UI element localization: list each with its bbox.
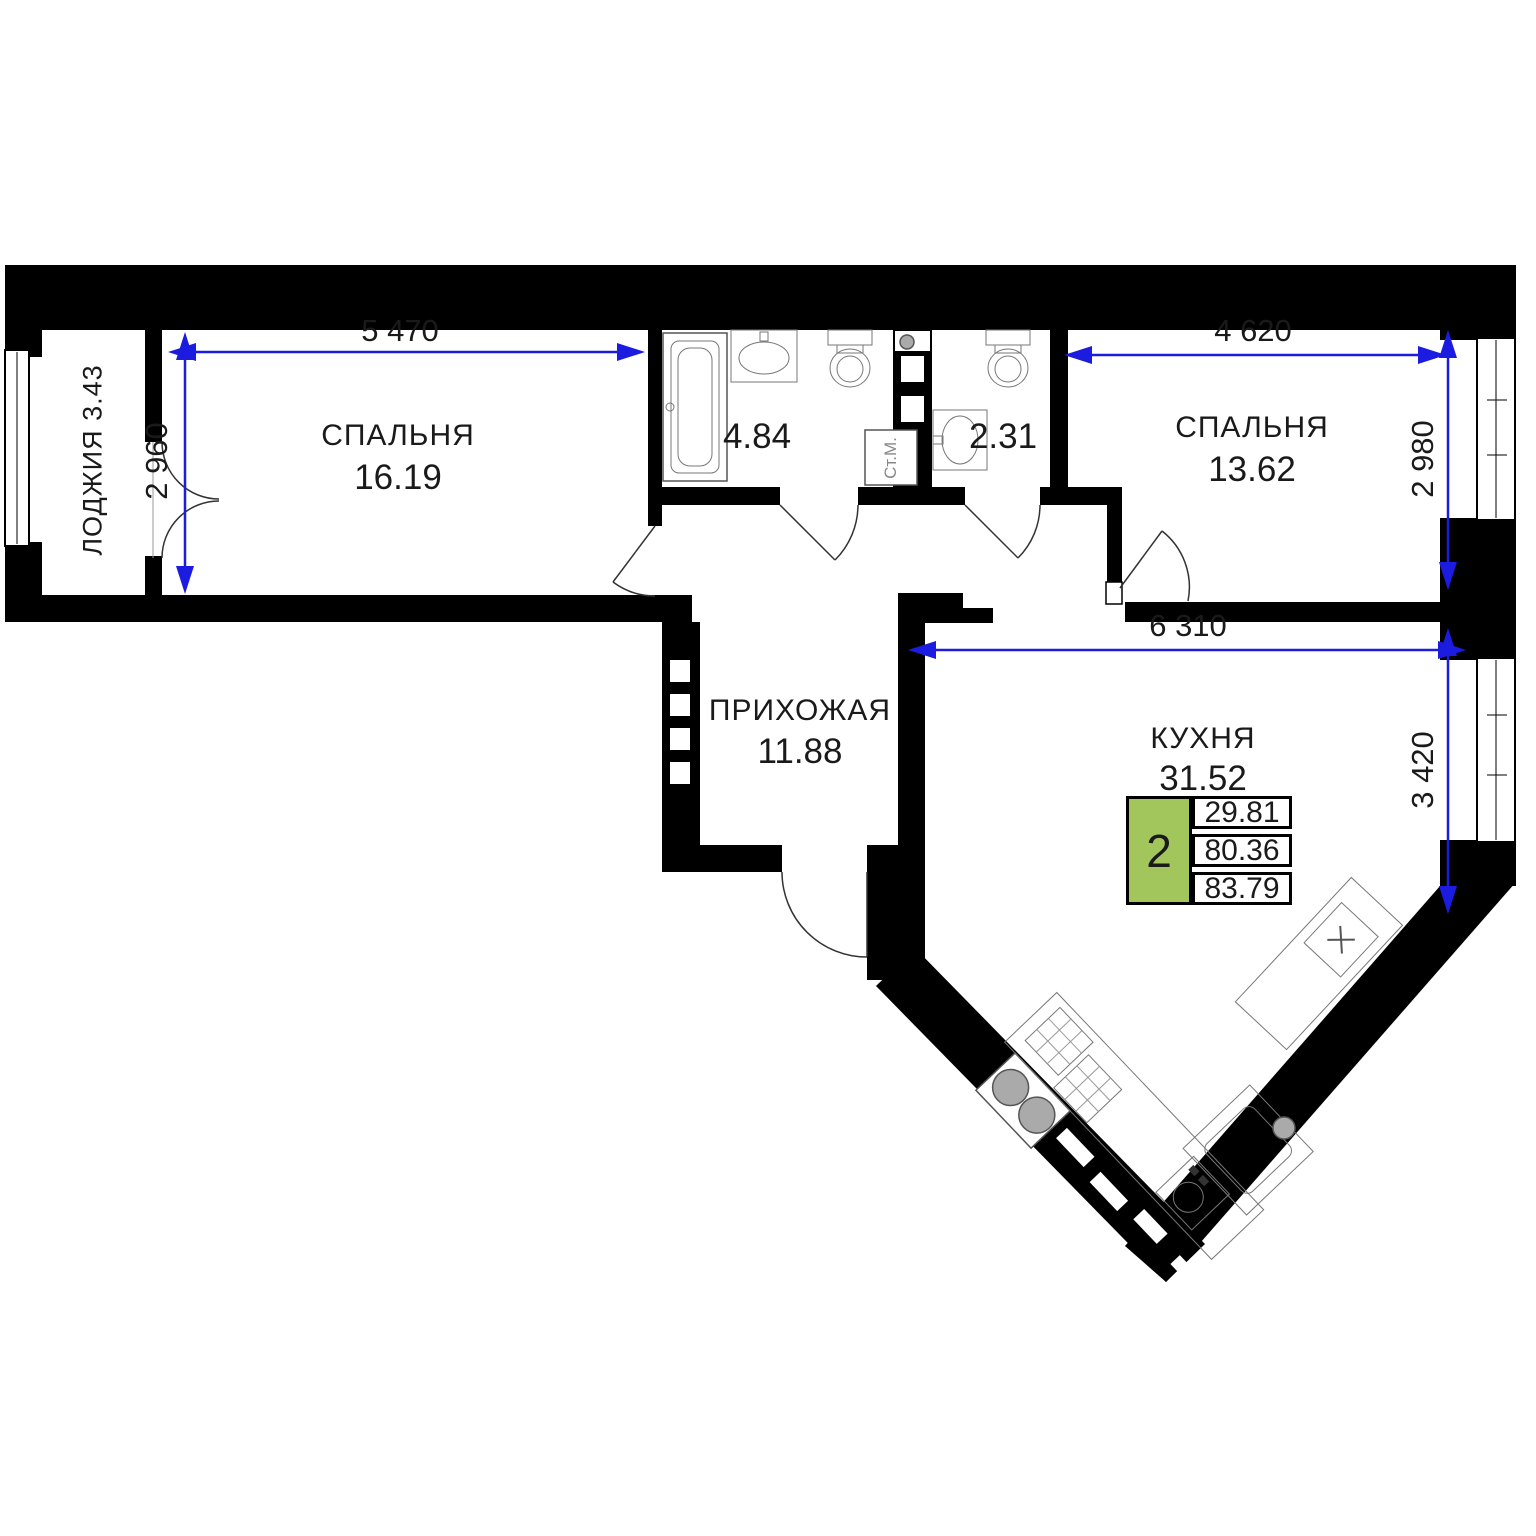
wall-hall-bottom <box>662 845 782 872</box>
hall-niche-3 <box>670 728 690 750</box>
wall-loggia-divider-bottom <box>145 556 162 597</box>
wc-door <box>965 505 1040 558</box>
wall-right-top-block <box>1440 265 1516 340</box>
apartment-info-box: 2 29.81 80.36 83.79 <box>1126 796 1292 905</box>
duct-cell-1 <box>901 356 924 382</box>
loggia-label: ЛОДЖИЯ 3.43 <box>78 364 109 555</box>
bedroom1-door <box>613 526 655 596</box>
area-values: 29.81 80.36 83.79 <box>1192 796 1292 905</box>
bath-sink-tap <box>760 332 768 341</box>
dim-kitchen-width: 6 310 <box>1149 608 1227 644</box>
kitchen-pipe-icon <box>1273 1117 1295 1139</box>
entrance-door <box>782 872 867 957</box>
wall-kitchen-top-b <box>963 608 993 623</box>
wall-kitchen-diagonal-right <box>1125 846 1516 1282</box>
hall-niche-1 <box>670 660 690 682</box>
rooms-count-badge: 2 <box>1126 796 1192 905</box>
hallway-area: 11.88 <box>758 732 843 772</box>
duct-cell-2 <box>901 396 924 422</box>
bath-toilet-tank <box>828 330 872 345</box>
wall-kitchen-top-a <box>898 593 963 623</box>
duct-pipe-icon <box>900 335 914 349</box>
bedroom2-door-jamb <box>1106 582 1122 604</box>
bedroom2-area: 13.62 <box>1208 450 1296 490</box>
hall-niche-4 <box>670 762 690 784</box>
washing-machine-label: Ст.М. <box>881 437 901 479</box>
dim-kitchen-height: 3 420 <box>1405 731 1441 809</box>
wall-bath-bottom-2 <box>858 487 965 505</box>
wall-hall-kitchen-divider <box>898 622 925 845</box>
bedroom1-name: СПАЛЬНЯ <box>321 419 475 453</box>
bathroom-area: 4.84 <box>723 417 791 457</box>
bathtub <box>663 333 727 481</box>
wc-toilet-tank <box>986 330 1030 345</box>
floor-plan: ЛОДЖИЯ 3.43 СПАЛЬНЯ 16.19 4.84 Ст.М. 2.3… <box>0 0 1536 1536</box>
hall-niche-2 <box>670 694 690 716</box>
bedroom1-area: 16.19 <box>354 458 442 498</box>
kitchen-name: КУХНЯ <box>1150 722 1255 756</box>
wc-toilet-bowl <box>988 349 1028 387</box>
dim-bedroom1-height: 2 960 <box>139 422 175 500</box>
wall-bedroom2-left <box>1107 503 1122 583</box>
dim-bedroom2-height: 2 980 <box>1405 420 1441 498</box>
bath-toilet-bowl <box>830 349 870 387</box>
bathroom-door <box>780 505 858 560</box>
loggia-area: 3.43 <box>78 364 108 421</box>
wall-strip-bottom <box>5 595 692 622</box>
balcony-door-leaf-bottom <box>162 501 219 558</box>
area-without-loggia-value: 80.36 <box>1192 834 1292 867</box>
wc-area: 2.31 <box>969 417 1037 457</box>
living-area-value: 29.81 <box>1192 796 1292 829</box>
bedroom2-door <box>1120 531 1189 601</box>
wall-bath-bottom-1 <box>648 487 780 505</box>
wall-bath-bottom-3 <box>1040 487 1122 505</box>
kitchen-area: 31.52 <box>1159 759 1247 799</box>
dim-bedroom1-width: 5 470 <box>361 313 439 349</box>
loggia-name: ЛОДЖИЯ <box>78 429 108 555</box>
total-area-value: 83.79 <box>1192 872 1292 905</box>
wall-wc-right <box>1050 330 1068 487</box>
hallway-name: ПРИХОЖАЯ <box>709 694 891 728</box>
drainer-grid <box>1025 1007 1093 1075</box>
wall-left-top <box>5 265 42 357</box>
dim-bedroom2-width: 4 620 <box>1214 313 1292 349</box>
bedroom2-name: СПАЛЬНЯ <box>1175 411 1329 445</box>
bath-sink <box>739 342 789 374</box>
